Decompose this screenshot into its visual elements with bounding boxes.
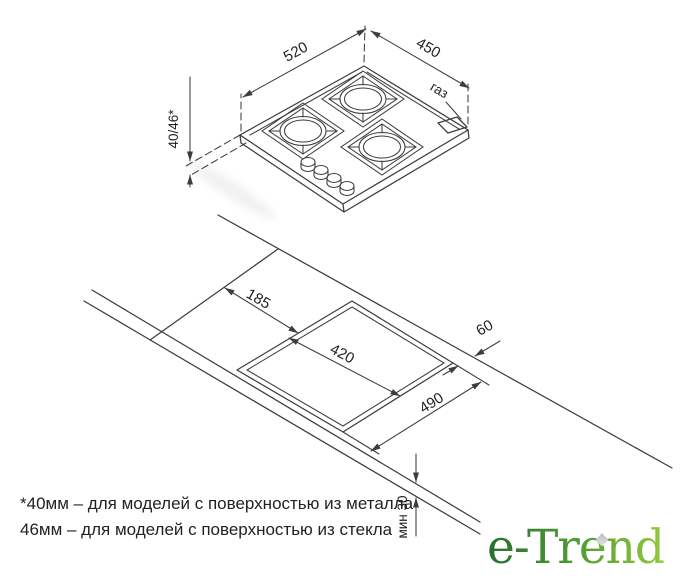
dim-label-490: 490 <box>416 389 446 417</box>
dim-label-height: 40/46* <box>166 109 181 149</box>
burner-left <box>262 103 344 159</box>
gas-label: газ <box>428 79 451 101</box>
logo: e-Trend <box>487 520 664 575</box>
footnote-line-2: 46мм – для моделей с поверхностью из сте… <box>20 520 393 539</box>
burner-front <box>341 119 423 175</box>
dim-label-420: 420 <box>327 341 357 368</box>
cutout-extension-lines <box>343 363 489 454</box>
control-knobs <box>301 158 354 196</box>
worktop-rear-edge <box>218 215 672 468</box>
dim-label-60: 60 <box>473 317 496 340</box>
control-knob <box>340 182 354 196</box>
footnote-line-1: *40мм – для моделей с поверхностью из ме… <box>20 494 414 513</box>
control-knob <box>301 158 315 172</box>
logo-text: e-Trend <box>487 520 664 575</box>
dim-label-185: 185 <box>243 285 273 312</box>
control-knob <box>314 166 328 180</box>
installation-diagram-page: 520 450 40/46* газ 185 420 490 60 мин 30 <box>0 0 696 584</box>
gas-leader-line <box>446 102 461 119</box>
hob-view-labels: 520 450 40/46* газ <box>166 34 451 148</box>
dim-line-60-outer <box>475 341 500 356</box>
burner-back <box>322 71 404 127</box>
cutout-outer <box>237 301 453 432</box>
worktop-cutout-view <box>84 215 672 536</box>
hob-shadow <box>184 155 280 225</box>
footnote: *40мм – для моделей с поверхностью из ме… <box>20 494 414 539</box>
control-knob <box>327 174 341 188</box>
